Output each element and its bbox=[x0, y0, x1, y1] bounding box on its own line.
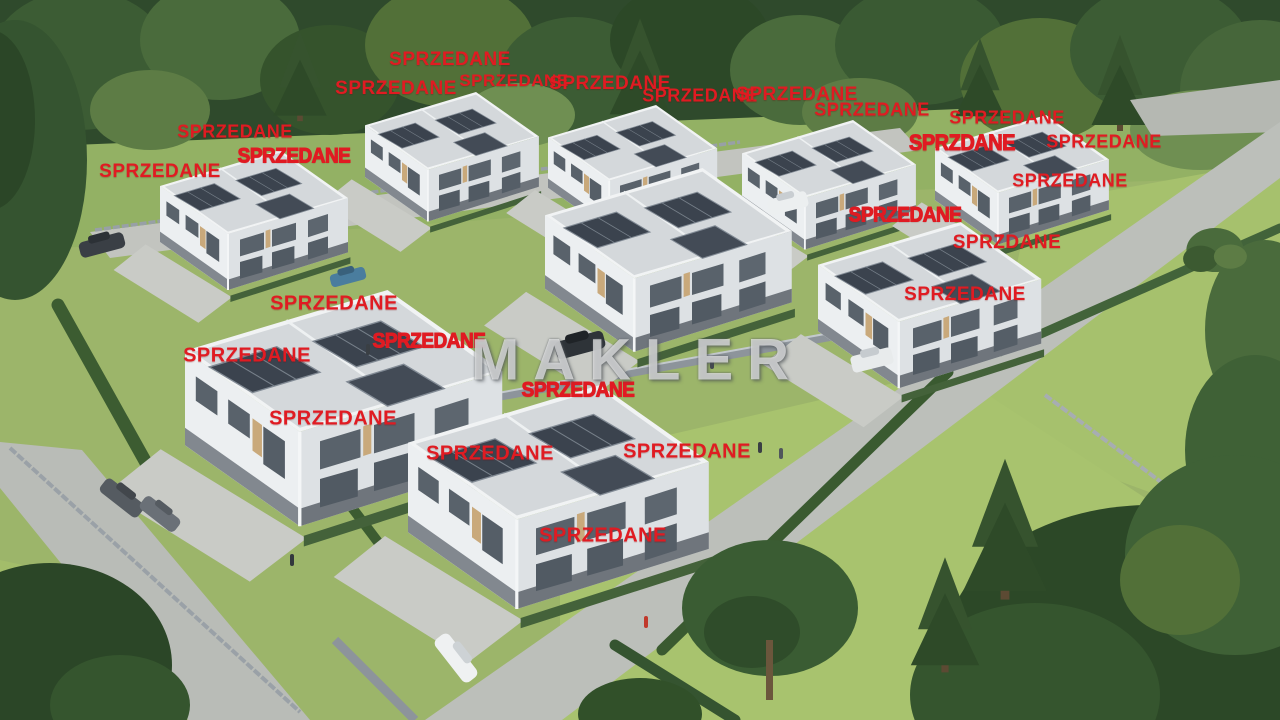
estate-aerial-render: SPRZEDANESPRZEDANESPRZEDANESPRZEDANESPRZ… bbox=[0, 0, 1280, 720]
makler-watermark: MAKLER bbox=[471, 327, 803, 394]
